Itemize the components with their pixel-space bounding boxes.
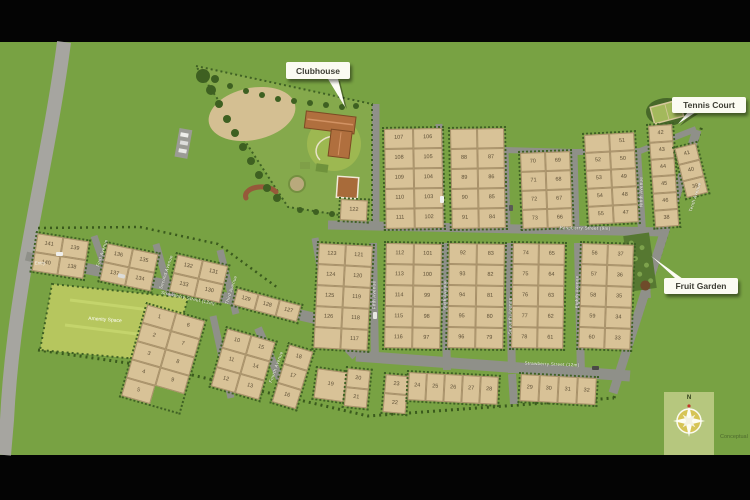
plot-98: 98 [412, 307, 440, 328]
tennis-court-callout: Tennis Court [672, 97, 746, 113]
plot-104: 104 [414, 168, 443, 189]
plot-28: 28 [479, 376, 498, 405]
plot-71: 71 [521, 171, 547, 191]
plot-114: 114 [385, 285, 413, 306]
plot-27: 27 [461, 375, 480, 404]
plot-42: 42 [648, 124, 673, 143]
plot-43: 43 [649, 141, 674, 160]
plot-100: 100 [413, 265, 441, 286]
plot-55: 55 [588, 205, 614, 224]
plot-97: 97 [412, 328, 440, 349]
plot-62: 62 [537, 306, 563, 327]
plot-94: 94 [448, 285, 476, 306]
plot-block: 112113114115116101100999897 [382, 241, 444, 351]
car [592, 366, 599, 370]
plot-101: 101 [414, 244, 442, 265]
plot-123: 123 [318, 243, 346, 265]
plot-68: 68 [546, 170, 572, 190]
plot-127: 127 [276, 300, 302, 322]
plot-block: 525354555150494847 [582, 130, 641, 227]
plot-112: 112 [386, 243, 414, 264]
street-label: Eighth Avenue [575, 276, 580, 309]
plot-block: 2425262728 [405, 370, 501, 407]
car [509, 205, 513, 211]
plot-47: 47 [613, 204, 639, 223]
street-label: Raspberry Street (9m) [560, 225, 611, 231]
plot-38: 38 [654, 209, 679, 228]
plot-63: 63 [538, 285, 564, 306]
plot-115: 115 [384, 306, 412, 327]
plot-69: 69 [545, 151, 571, 171]
plot-34: 34 [605, 307, 632, 329]
plot-125: 125 [316, 285, 344, 307]
plot-spacer [450, 128, 477, 148]
park-planter [316, 163, 329, 173]
plot-87: 87 [477, 148, 504, 168]
plot-93: 93 [448, 264, 476, 285]
plot-67: 67 [546, 189, 572, 209]
plot-121: 121 [345, 245, 373, 267]
plot-92: 92 [449, 243, 477, 264]
plot-105: 105 [413, 148, 442, 169]
plot-70: 70 [520, 152, 546, 172]
plot-116: 116 [384, 327, 412, 348]
plot-block: 92939495968382818079 [445, 241, 507, 351]
street-label: Sixth Avenue [443, 280, 448, 310]
tennis-court-callout-label: Tennis Court [683, 100, 735, 110]
plot-32: 32 [576, 377, 596, 405]
plot-138: 138 [57, 256, 86, 279]
plot-35: 35 [606, 286, 633, 308]
compass-north-label: N [687, 395, 691, 401]
plot-109: 109 [385, 168, 414, 189]
plot-99: 99 [413, 286, 441, 307]
plot-spacer [313, 327, 341, 349]
plot-117: 117 [340, 328, 368, 350]
plot-113: 113 [385, 264, 413, 285]
plot-block: 2021 [342, 366, 373, 411]
plot-134: 134 [125, 267, 154, 291]
conceptual-watermark: Conceptual [720, 434, 748, 440]
plot-block: 56575859603736353433 [576, 241, 636, 352]
plot-89: 89 [451, 168, 478, 188]
plot-61: 61 [537, 327, 563, 348]
plot-56: 56 [581, 243, 608, 265]
plot-79: 79 [475, 328, 503, 349]
plot-24: 24 [407, 372, 426, 401]
plot-44: 44 [651, 158, 676, 177]
plot-90: 90 [451, 188, 478, 208]
plot-block: 8889909187868584 [448, 126, 508, 231]
plot-31: 31 [557, 376, 577, 404]
plot-60: 60 [578, 327, 605, 349]
plot-49: 49 [611, 168, 637, 187]
plot-86: 86 [478, 168, 505, 188]
park-planter-2 [300, 162, 310, 169]
plot-95: 95 [447, 306, 475, 327]
street-label: Fifth Avenue [372, 281, 377, 310]
plot-126: 126 [314, 306, 342, 328]
plot-36: 36 [606, 265, 633, 287]
plot-22: 22 [383, 393, 408, 414]
car [56, 252, 63, 256]
plot-81: 81 [476, 286, 504, 307]
plot-25: 25 [425, 373, 444, 402]
plot-84: 84 [478, 208, 505, 228]
plot-85: 85 [478, 188, 505, 208]
plot-124: 124 [317, 264, 345, 286]
park-round-garden [289, 176, 305, 192]
clubhouse-callout-label: Clubhouse [296, 66, 340, 76]
plot-106: 106 [413, 128, 442, 149]
plot-120: 120 [344, 265, 372, 287]
plot-53: 53 [586, 170, 612, 189]
street-label: Seventh Avenue [508, 298, 513, 335]
plot-74: 74 [513, 243, 539, 264]
plot-75: 75 [512, 264, 538, 285]
plot-118: 118 [341, 307, 369, 329]
plot-65: 65 [539, 243, 565, 264]
plot-45: 45 [652, 175, 677, 194]
plot-48: 48 [612, 186, 638, 205]
plot-77: 77 [511, 306, 537, 327]
plot-88: 88 [450, 148, 477, 168]
plot-spacer [584, 134, 610, 153]
entry-label: Entry [35, 261, 46, 266]
car [440, 196, 444, 203]
plot-block: 29303132 [517, 372, 599, 407]
car [373, 312, 377, 319]
plot-37: 37 [607, 244, 634, 266]
plot-30: 30 [538, 375, 558, 403]
plot-20: 20 [346, 368, 371, 389]
plot-block: 7071727369686766 [518, 149, 575, 231]
plot-block: 123124125126121120119118117 [311, 241, 375, 353]
plot-46: 46 [653, 192, 678, 211]
plot-59: 59 [579, 306, 606, 328]
plot-111: 111 [385, 208, 414, 229]
plot-73: 73 [522, 209, 548, 229]
site-plan-map: 1071081091101111061051041031028889909187… [0, 0, 750, 500]
plot-21: 21 [344, 387, 369, 408]
plot-58: 58 [580, 285, 607, 307]
plot-spacer [477, 128, 504, 148]
plot-80: 80 [475, 307, 503, 328]
plot-82: 82 [476, 265, 504, 286]
plot-76: 76 [512, 285, 538, 306]
plot-72: 72 [521, 190, 547, 210]
plot-102: 102 [414, 208, 443, 229]
park-annex-building [336, 176, 358, 198]
plot-block: 107108109110111106105104103102 [382, 126, 446, 231]
plot-108: 108 [384, 148, 413, 169]
fruit-garden-callout-label: Fruit Garden [675, 281, 726, 291]
plot-51: 51 [609, 132, 635, 151]
plot-29: 29 [519, 374, 539, 402]
plot-54: 54 [587, 188, 613, 207]
bottom-row-cross-street [512, 374, 514, 404]
plot-57: 57 [580, 264, 607, 286]
plot-107: 107 [384, 128, 413, 149]
fruit-garden-callout: Fruit Garden [664, 278, 738, 294]
plot-block: 122 [338, 197, 370, 224]
plot-91: 91 [451, 208, 478, 228]
plot-78: 78 [511, 327, 537, 348]
street-label: Ninth Avenue [639, 177, 644, 207]
plot-33: 33 [604, 328, 631, 350]
plot-block: 141140139138 [29, 231, 91, 281]
plot-83: 83 [477, 244, 505, 265]
plot-119: 119 [343, 286, 371, 308]
plot-52: 52 [585, 152, 611, 171]
plot-96: 96 [447, 327, 475, 348]
plot-50: 50 [610, 150, 636, 169]
plot-122: 122 [340, 199, 368, 221]
plot-block: 74757677786564636261 [509, 241, 567, 351]
plot-110: 110 [385, 188, 414, 209]
clubhouse-callout: Clubhouse [286, 62, 350, 79]
plot-64: 64 [538, 264, 564, 285]
plot-26: 26 [443, 374, 462, 403]
